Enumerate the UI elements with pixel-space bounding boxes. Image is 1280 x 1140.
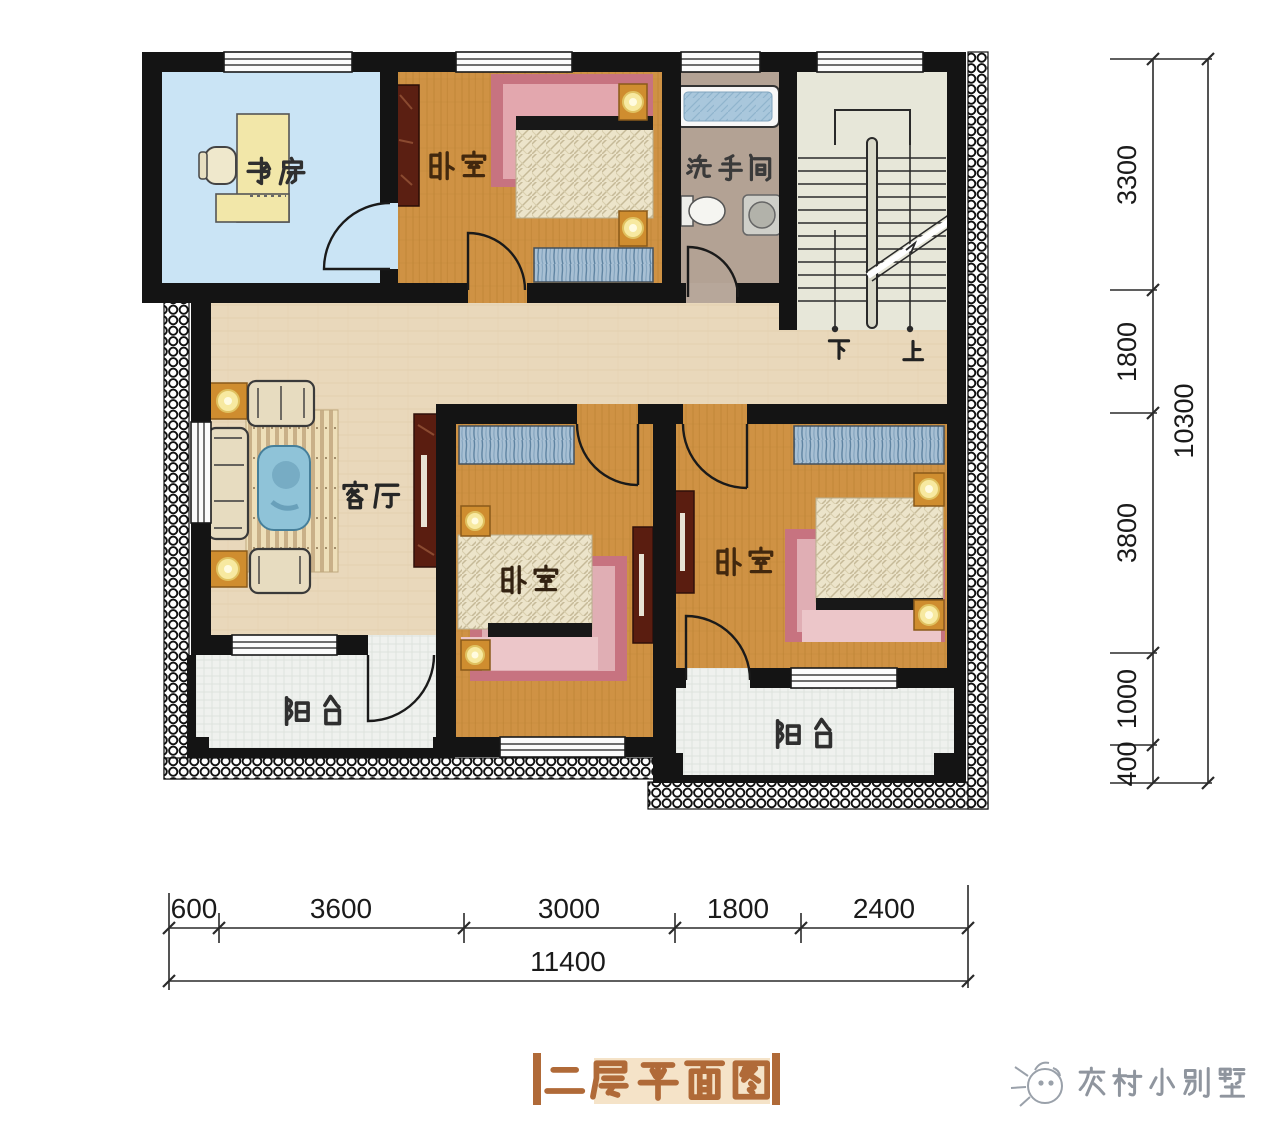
svg-text:3600: 3600 <box>310 893 372 924</box>
svg-text:400: 400 <box>1112 741 1142 786</box>
svg-text:1800: 1800 <box>1112 322 1142 382</box>
svg-text:3800: 3800 <box>1112 503 1142 563</box>
svg-text:1000: 1000 <box>1112 669 1142 729</box>
svg-text:3300: 3300 <box>1112 145 1142 205</box>
svg-text:600: 600 <box>171 893 218 924</box>
svg-text:2400: 2400 <box>853 893 915 924</box>
svg-text:3000: 3000 <box>538 893 600 924</box>
svg-text:10300: 10300 <box>1169 383 1199 458</box>
svg-text:11400: 11400 <box>530 946 606 977</box>
svg-text:1800: 1800 <box>707 893 769 924</box>
